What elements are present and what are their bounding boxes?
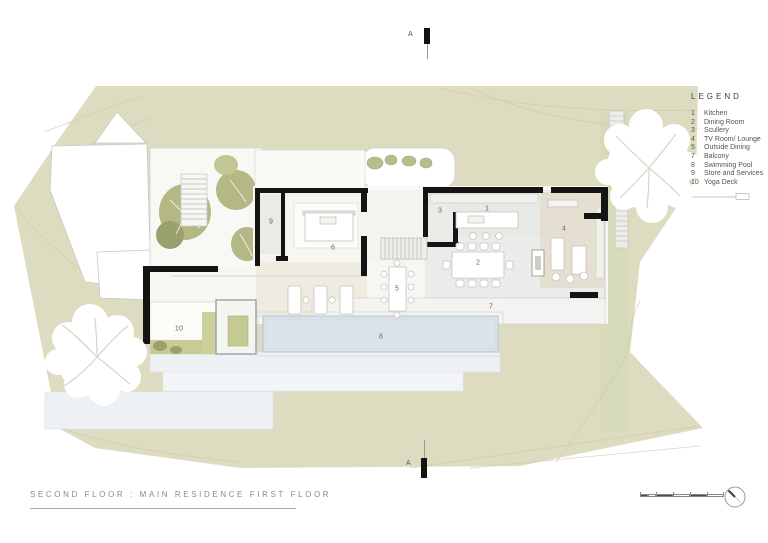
site-plan-drawing	[0, 0, 768, 543]
central-stair	[381, 238, 427, 259]
legend-item-label: Swimming Pool	[704, 162, 767, 171]
courtyard-stair	[181, 174, 207, 226]
scale-bar	[640, 492, 724, 500]
legend-item-label: Yoga Deck	[704, 179, 767, 188]
legend-item: 7 Balcony	[691, 153, 767, 162]
legend-item-label: Store and Services	[704, 170, 767, 179]
cabana	[216, 300, 256, 354]
room-label-5: 5	[395, 286, 399, 293]
legend-item-num: 2	[691, 119, 704, 128]
legend-item-num: 5	[691, 144, 704, 153]
legend-item-label: TV Room/ Lounge	[704, 136, 767, 145]
drawing-title: SECOND FLOOR : MAIN RESIDENCE FIRST FLOO…	[30, 490, 331, 499]
sofa-icon	[551, 238, 564, 270]
legend-item: 4 TV Room/ Lounge	[691, 136, 767, 145]
legend-item-num: 1	[691, 110, 704, 119]
courtyard-garden	[150, 148, 263, 270]
room-label-9: 9	[269, 219, 273, 226]
legend-item-num: 4	[691, 136, 704, 145]
legend-item-num: 7	[691, 153, 704, 162]
title-block: SECOND FLOOR : MAIN RESIDENCE FIRST FLOO…	[30, 484, 296, 509]
legend-panel: LEGEND 1 Kitchen 2 Dining Room 3 Sculler…	[691, 92, 767, 187]
room-label-6: 6	[331, 245, 335, 252]
legend-item-label: Dining Room	[704, 119, 767, 128]
legend-item: 8 Swimming Pool	[691, 162, 767, 171]
north-arrow-icon	[724, 486, 746, 508]
legend-item-label: Balcony	[704, 153, 767, 162]
roof-deck-planters	[255, 148, 455, 188]
room-label-10: 10	[175, 326, 183, 333]
legend-item: 1 Kitchen	[691, 110, 767, 119]
legend-item: 10 Yoga Deck	[691, 179, 767, 188]
legend-item: 5 Outside Dining	[691, 144, 767, 153]
room-label-1: 1	[485, 206, 489, 213]
legend-item-label: Outside Dining	[704, 144, 767, 153]
section-marker-a-top-label: A	[408, 31, 413, 38]
sofa-icon	[572, 246, 586, 274]
room-label-2: 2	[476, 260, 480, 267]
kitchen-island-icon	[456, 212, 518, 228]
section-marker-a-bottom-bar	[421, 458, 427, 478]
legend-item-num: 9	[691, 170, 704, 179]
yoga-deck	[150, 300, 256, 354]
lounger-icon	[340, 286, 353, 314]
section-line-top	[427, 44, 428, 59]
section-line-bottom	[424, 440, 425, 458]
section-marker-a-top-bar	[424, 28, 430, 44]
legend-item-label: Kitchen	[704, 110, 767, 119]
room-label-7: 7	[489, 304, 493, 311]
lounger-icon	[288, 286, 301, 314]
legend-item-num: 3	[691, 127, 704, 136]
room-label-8: 8	[379, 334, 383, 341]
section-marker-a-bottom-label: A	[406, 460, 411, 467]
legend-item: 3 Scullery	[691, 127, 767, 136]
legend-item: 2 Dining Room	[691, 119, 767, 128]
legend-heading: LEGEND	[691, 92, 767, 101]
legend-item-num: 10	[691, 179, 704, 188]
legend-item: 9 Store and Services	[691, 170, 767, 179]
lounger-icon	[314, 286, 327, 314]
legend-item-label: Scullery	[704, 127, 767, 136]
room-label-4: 4	[562, 226, 566, 233]
room-label-3: 3	[438, 208, 442, 215]
legend-item-num: 8	[691, 162, 704, 171]
floor-plan-sheet: 1 2 3 4 5 6 7 8 9 10 LEGEND 1 Kitchen 2 …	[0, 0, 768, 543]
